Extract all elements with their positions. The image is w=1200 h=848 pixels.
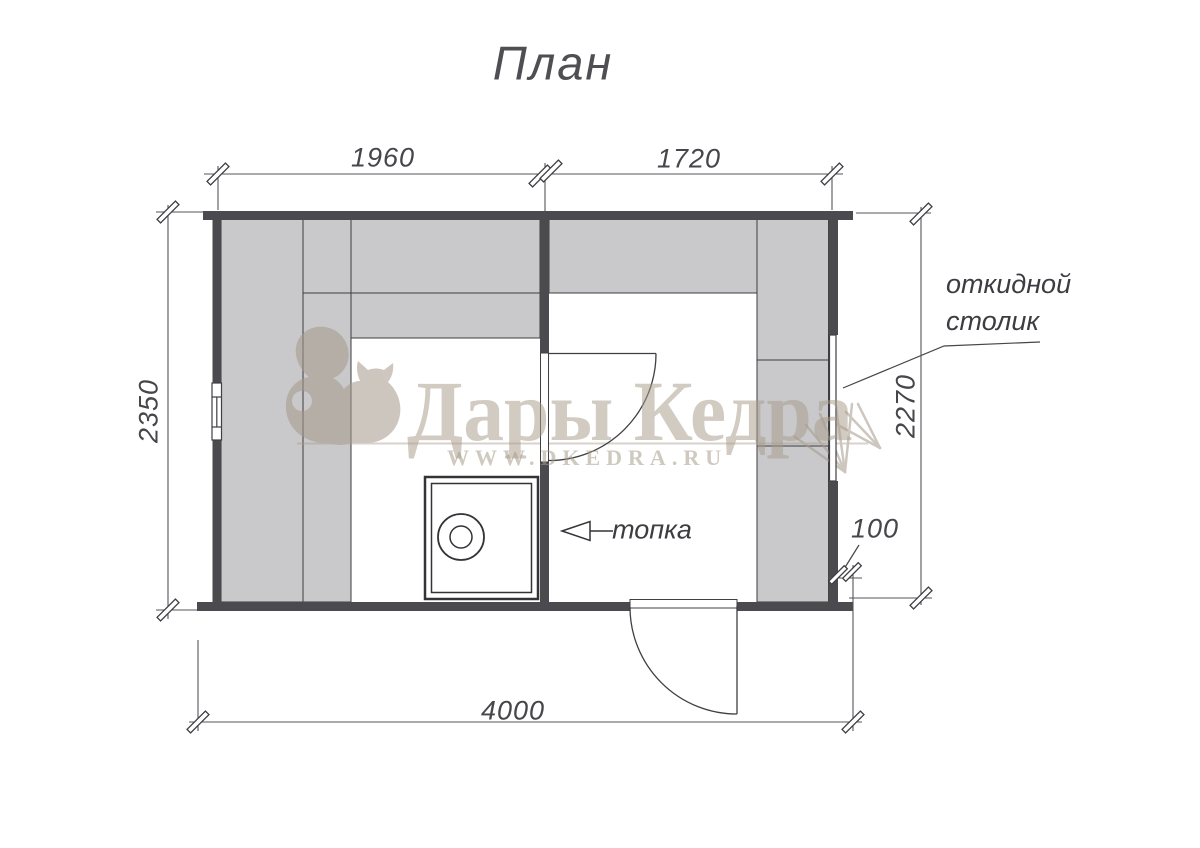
- dim-value-overhang: 100: [851, 514, 899, 545]
- wall-top: [203, 211, 853, 220]
- steam-room-bench-top-tiers: [351, 220, 540, 339]
- folding-table-label-line1: откидной: [946, 266, 1071, 303]
- wall-partition-upper: [540, 220, 549, 354]
- firebox-arrow-icon: [562, 522, 613, 541]
- exterior-doorway: [630, 600, 737, 609]
- wall-bottom-left: [197, 602, 630, 611]
- wall-left-upper: [213, 211, 222, 383]
- watermark-brand: Дары Кедра: [407, 368, 853, 454]
- dim-value-room1-width: 1960: [351, 143, 415, 174]
- wall-right-upper: [829, 211, 839, 335]
- watermark-website: WWW.DKEDRA.RU: [447, 447, 727, 469]
- page-title: План: [493, 36, 614, 91]
- wall-left-lower: [213, 440, 222, 611]
- exterior-door-swing: [630, 606, 737, 714]
- dim-value-right-height: 2270: [891, 374, 922, 438]
- firebox-label: топка: [612, 515, 692, 546]
- window-left-wall: [212, 383, 222, 440]
- rest-room-shelf-top: [549, 220, 757, 294]
- folding-table-leader: [843, 342, 1040, 388]
- folding-table-label: откидной столик: [946, 266, 1071, 340]
- dim-value-left-height: 2350: [134, 379, 165, 443]
- dim-value-room2-width: 1720: [657, 144, 721, 175]
- stove-chimney-inner: [450, 526, 472, 548]
- floor-plan-canvas: План 1960 1720 2350 2270 100 4000 откидн…: [0, 0, 1200, 848]
- wall-right-lower: [829, 481, 839, 611]
- stove: [425, 477, 538, 599]
- wall-partition-lower: [540, 462, 549, 602]
- folding-table-label-line2: столик: [946, 303, 1071, 340]
- dim-value-total-width: 4000: [481, 696, 545, 727]
